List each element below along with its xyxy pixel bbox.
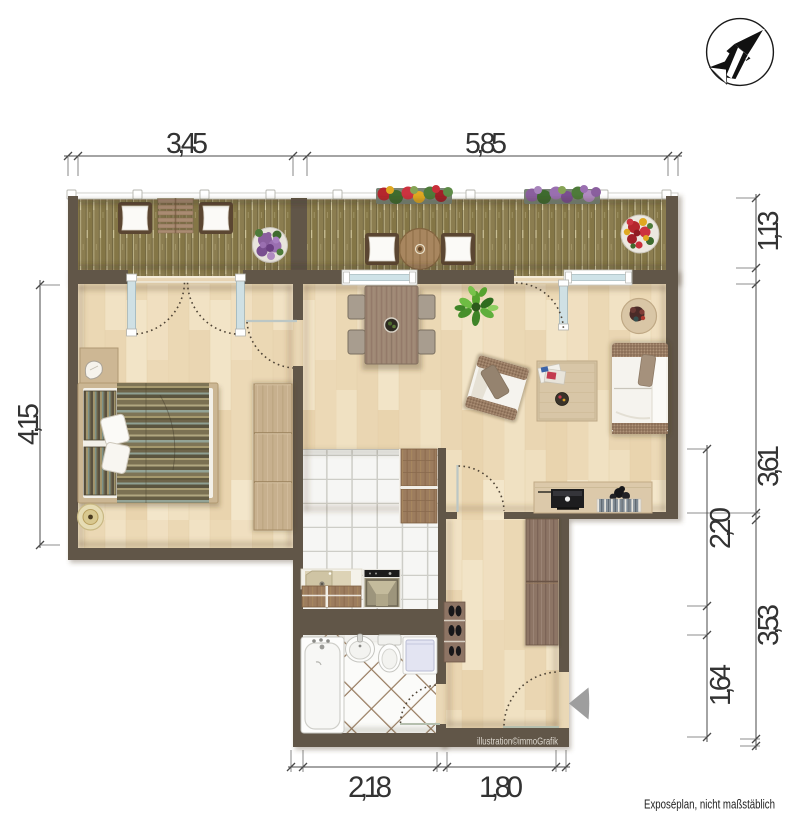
svg-text:3,53: 3,53 bbox=[753, 604, 785, 646]
svg-text:1,13: 1,13 bbox=[753, 211, 785, 252]
svg-text:Exposéplan, nicht maßstäblich: Exposéplan, nicht maßstäblich bbox=[644, 798, 775, 812]
svg-text:5,85: 5,85 bbox=[465, 128, 507, 160]
svg-text:illustration©immoGrafik: illustration©immoGrafik bbox=[477, 736, 559, 748]
svg-text:1,80: 1,80 bbox=[479, 771, 523, 804]
svg-text:3,61: 3,61 bbox=[753, 445, 785, 487]
svg-text:2,20: 2,20 bbox=[705, 507, 737, 549]
svg-text:4,15: 4,15 bbox=[13, 403, 45, 445]
svg-text:2,18: 2,18 bbox=[348, 771, 392, 804]
svg-text:3,45: 3,45 bbox=[166, 128, 208, 160]
svg-text:1,64: 1,64 bbox=[705, 664, 737, 706]
